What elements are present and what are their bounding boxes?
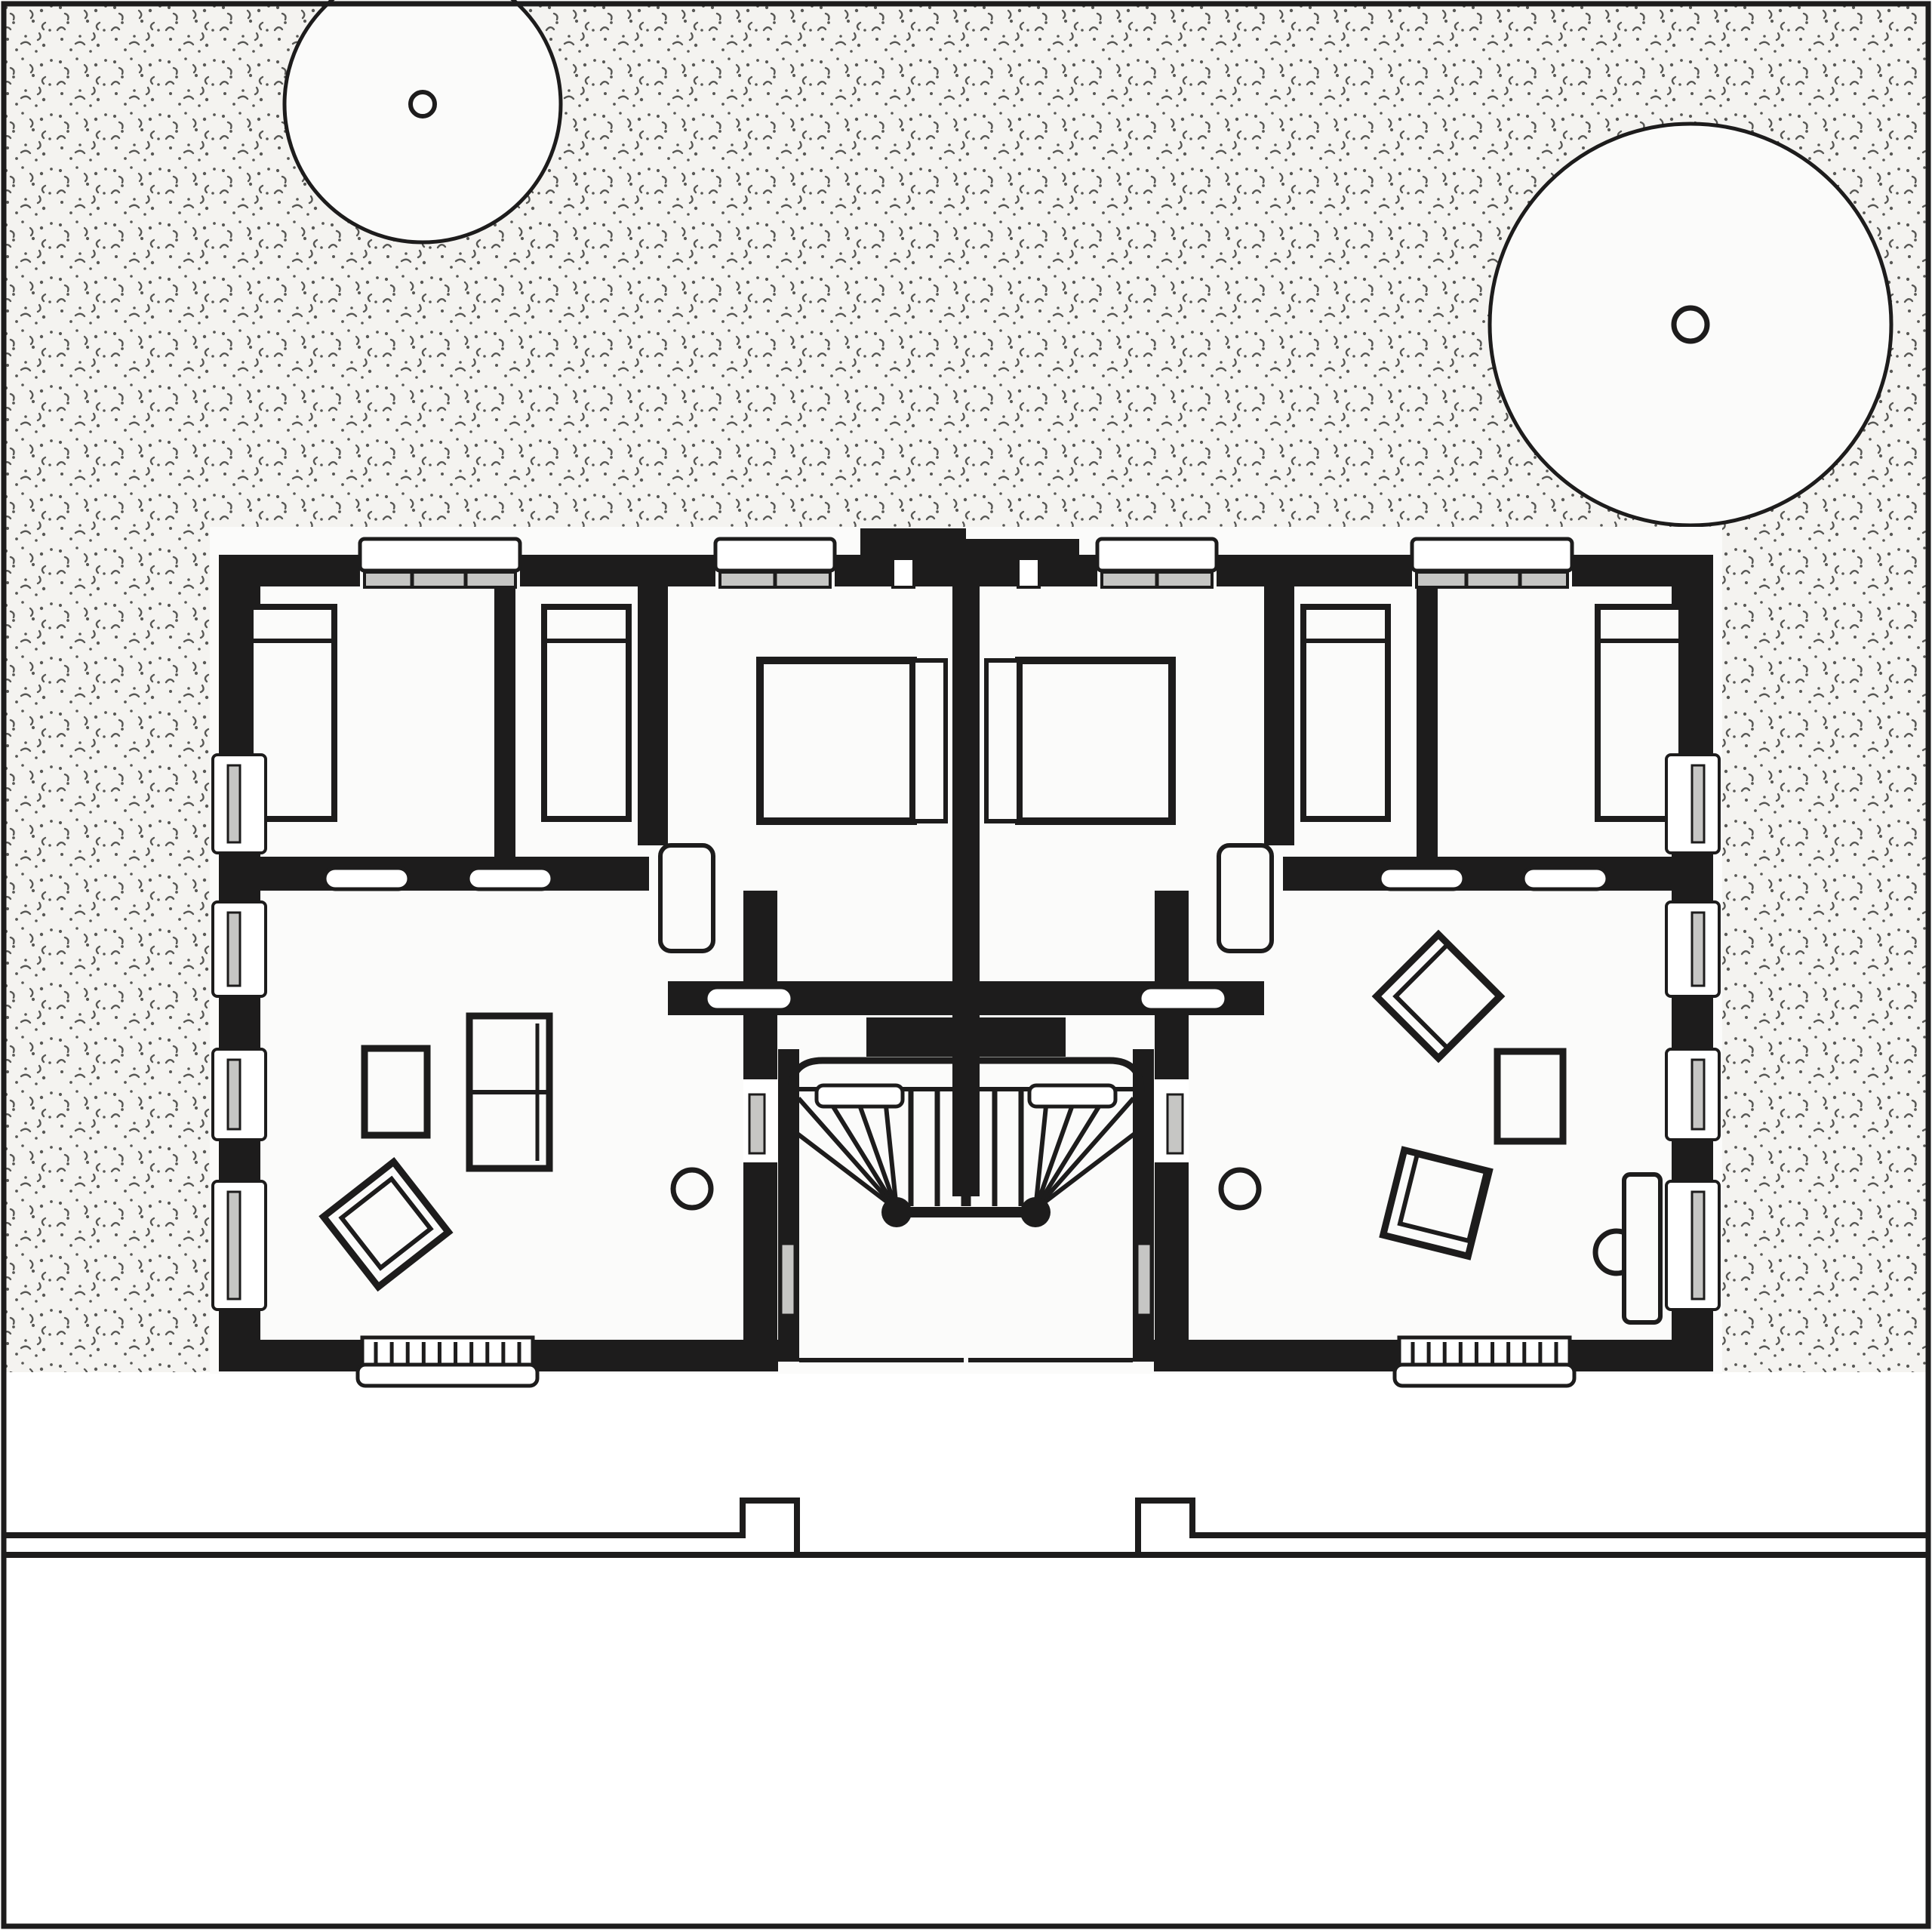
window-sill [715,539,835,571]
wall-between-bedrooms [494,586,515,857]
top-exterior-wall [835,555,893,586]
side-window-glazing [1692,765,1704,842]
tree-trunk-left [411,92,435,116]
round-stool [1221,1170,1259,1208]
chimney-block-left [860,528,966,559]
door-opening [1140,987,1226,1010]
stair-newel-post [1020,1197,1051,1227]
window-sill [1412,539,1572,571]
door-opening [1380,868,1464,889]
entry-porch-floor [799,1218,1133,1362]
kitchen-table [760,660,913,821]
stair-newel-post [881,1197,912,1227]
street [5,1501,1927,1555]
side-window-glazing [1692,913,1704,986]
window-sill [1097,539,1217,571]
bottom-exterior-wall [533,1340,778,1371]
door-opening [706,987,792,1010]
side-window-glazing [228,765,240,842]
coffee-table [365,1048,427,1135]
wall-between-bedrooms [1417,586,1438,857]
hall-door-glazing [1168,1094,1183,1153]
hall-closet [1219,845,1272,951]
bedroom-partition-wall [249,857,649,891]
curb-line-left-with-notch [5,1501,797,1555]
bottom-exterior-wall [219,1340,362,1371]
hall-closet [660,845,713,951]
bottom-exterior-wall [1154,1340,1399,1371]
wall-vent [1018,559,1039,587]
window-glazing [365,572,515,587]
hall-door-glazing [749,1094,764,1153]
side-window-glazing [228,1060,240,1129]
window-sill [360,539,520,571]
door-opening [468,868,552,889]
side-window-glazing [1692,1192,1704,1299]
side-window-glazing [228,913,240,986]
sideboard [1624,1174,1660,1322]
porch-sidelight-glazing [781,1244,795,1315]
stair-landing-sill [1029,1085,1115,1107]
floor-plan-drawing [0,0,1932,1930]
armchair-seat [1400,1155,1486,1241]
stair-landing-wall [980,1017,1066,1057]
door-opening [325,868,409,889]
top-exterior-wall [1039,555,1097,586]
living-hall-wall-upper [743,891,777,1079]
side-window-glazing [1692,1060,1704,1129]
top-exterior-wall [1217,555,1412,586]
plan-layers-root [4,0,1928,1926]
bottom-exterior-wall [1570,1340,1713,1371]
party-wall [952,555,980,1196]
stair-landing-sill [817,1085,903,1107]
living-hall-wall-upper [1155,891,1189,1079]
tree-trunk-right [1674,308,1707,341]
bedroom-partition-wall [1283,857,1683,891]
porch-sidelight-glazing [1137,1244,1151,1315]
wall-bedroom-kitchen [1264,586,1294,845]
side-table [1497,1051,1563,1141]
kitchen-counter-strip [986,660,1019,821]
round-stool [673,1170,711,1208]
curb-line-right-with-notch [1138,1501,1927,1555]
stair-landing-wall [866,1017,952,1057]
side-window-glazing [228,1192,240,1299]
window-glazing [1417,572,1567,587]
living-hall-wall-lower [1155,1162,1189,1340]
wall-bedroom-kitchen [638,586,668,845]
armchair-rotated [1383,1150,1490,1257]
chimney-block-right [966,539,1079,559]
kitchen-counter-strip [913,660,946,821]
terrace-window-sill [358,1365,537,1386]
wall-vent [893,559,914,587]
top-exterior-wall [520,555,715,586]
floor-plan-page [0,0,1932,1930]
door-opening [1523,868,1607,889]
terrace-window-sill [1395,1365,1574,1386]
kitchen-table [1019,660,1172,821]
living-hall-wall-lower [743,1162,777,1340]
